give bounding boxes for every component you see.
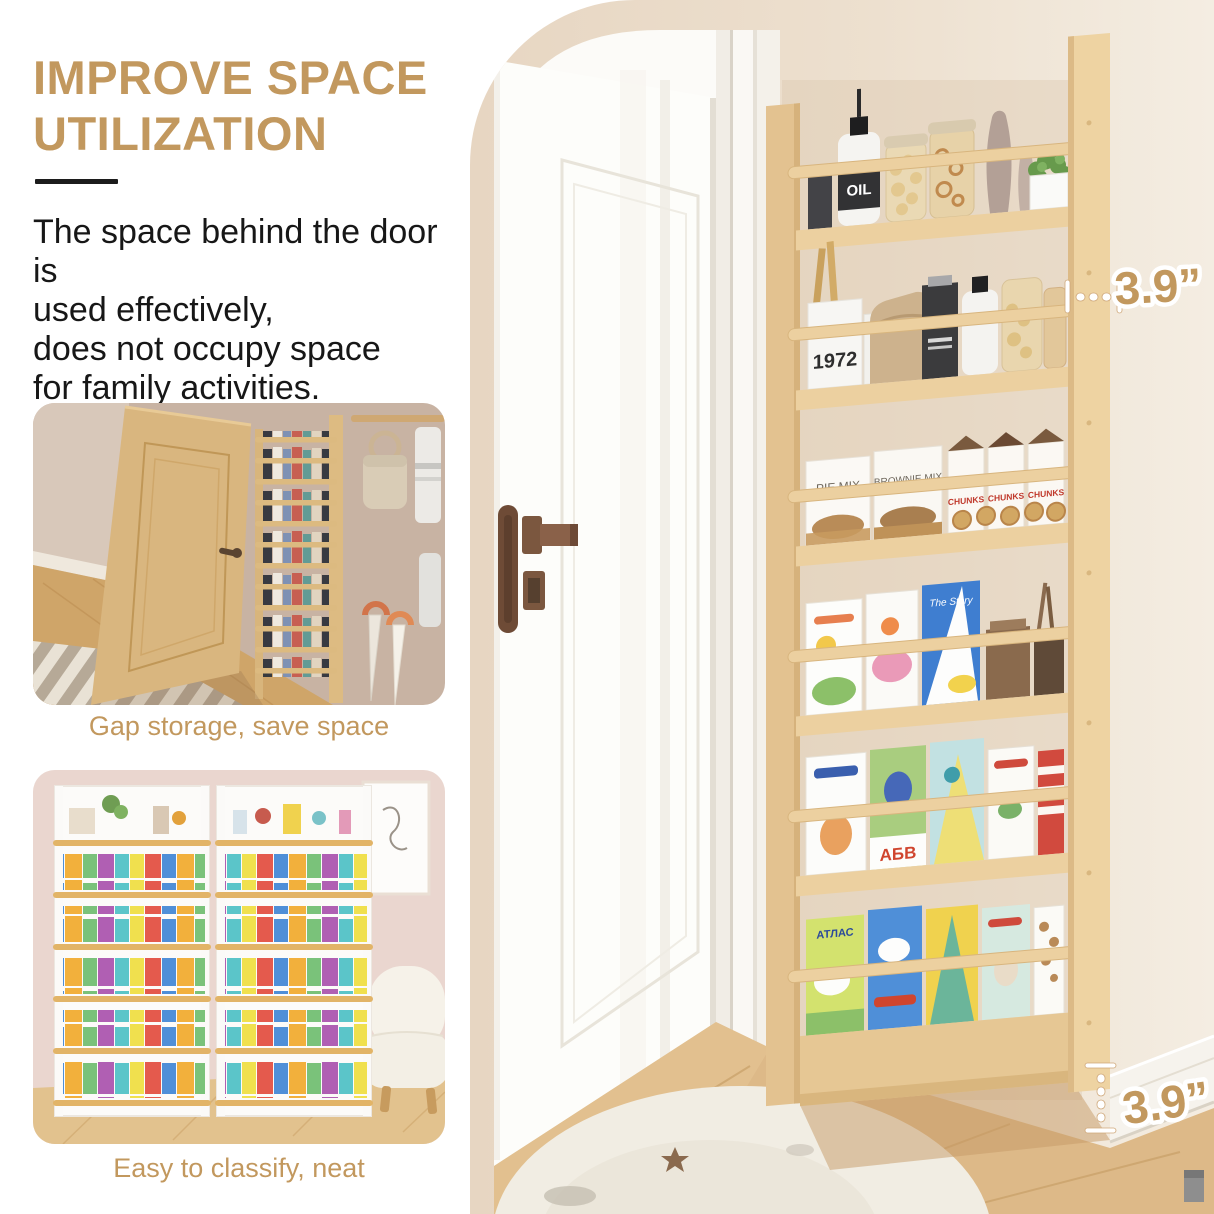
marketing-image: IMPROVE SPACE UTILIZATION The space behi… — [0, 0, 1214, 1214]
bag-pack-label: 1972 — [813, 348, 857, 374]
white-door — [494, 60, 716, 1166]
oil-label: OIL — [847, 181, 872, 200]
photo1-caption: Gap storage, save space — [33, 711, 445, 742]
photo-bookshelves — [33, 770, 445, 1144]
photo-bookshelves-scene — [33, 770, 445, 1144]
bookshelf-unit-right — [215, 786, 373, 1116]
intro-line: used effectively, — [33, 291, 463, 330]
door-handle-icon — [498, 505, 518, 633]
svg-text:3.9”: 3.9” — [1119, 1071, 1212, 1135]
dimension-label-top: 3.9” — [1110, 249, 1214, 325]
dimension-line-vertical — [1082, 1062, 1120, 1151]
dimension-label-bottom: 3.9” — [1116, 1061, 1214, 1145]
photo2-caption: Easy to classify, neat — [33, 1153, 445, 1184]
page-title: IMPROVE SPACE UTILIZATION — [33, 50, 473, 162]
photo-gap-storage-scene — [33, 403, 445, 705]
abc-book-label: АБВ — [880, 843, 917, 865]
paper-bag — [870, 291, 930, 384]
hero-photo-behind-door-rack: OIL — [470, 0, 1214, 1214]
page-title-line2: UTILIZATION — [33, 106, 473, 162]
intro-paragraph: The space behind the door is used effect… — [33, 213, 463, 408]
intro-line: does not occupy space — [33, 330, 463, 369]
bookshelf-unit-left — [53, 786, 211, 1116]
book-rack — [255, 415, 343, 703]
photo-gap-storage — [33, 403, 445, 705]
wall-art-frame — [363, 782, 429, 894]
page-title-line1: IMPROVE SPACE — [33, 50, 473, 106]
svg-text:3.9”: 3.9” — [1113, 258, 1203, 314]
rack-right-post — [1068, 33, 1110, 1093]
hero-scene: OIL — [470, 0, 1214, 1214]
intro-line: The space behind the door is — [33, 213, 463, 291]
title-underline — [35, 179, 118, 184]
